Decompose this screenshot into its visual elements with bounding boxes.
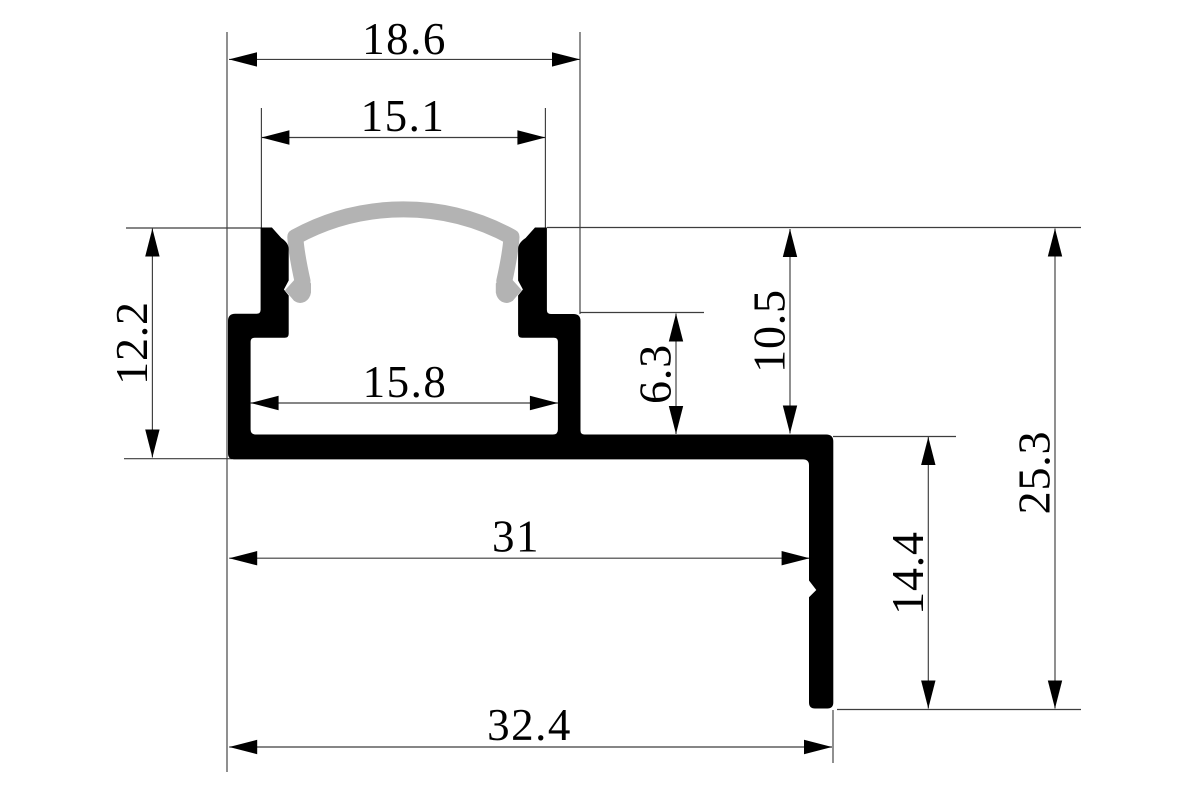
svg-text:12.2: 12.2 — [106, 301, 157, 385]
svg-text:10.5: 10.5 — [744, 289, 795, 373]
svg-text:31: 31 — [492, 512, 540, 562]
svg-text:6.3: 6.3 — [630, 344, 681, 404]
svg-text:14.4: 14.4 — [882, 531, 933, 615]
svg-text:18.6: 18.6 — [362, 14, 447, 64]
svg-text:15.8: 15.8 — [363, 357, 448, 407]
svg-text:25.3: 25.3 — [1009, 431, 1060, 515]
svg-text:15.1: 15.1 — [361, 91, 446, 141]
svg-text:32.4: 32.4 — [487, 700, 572, 750]
